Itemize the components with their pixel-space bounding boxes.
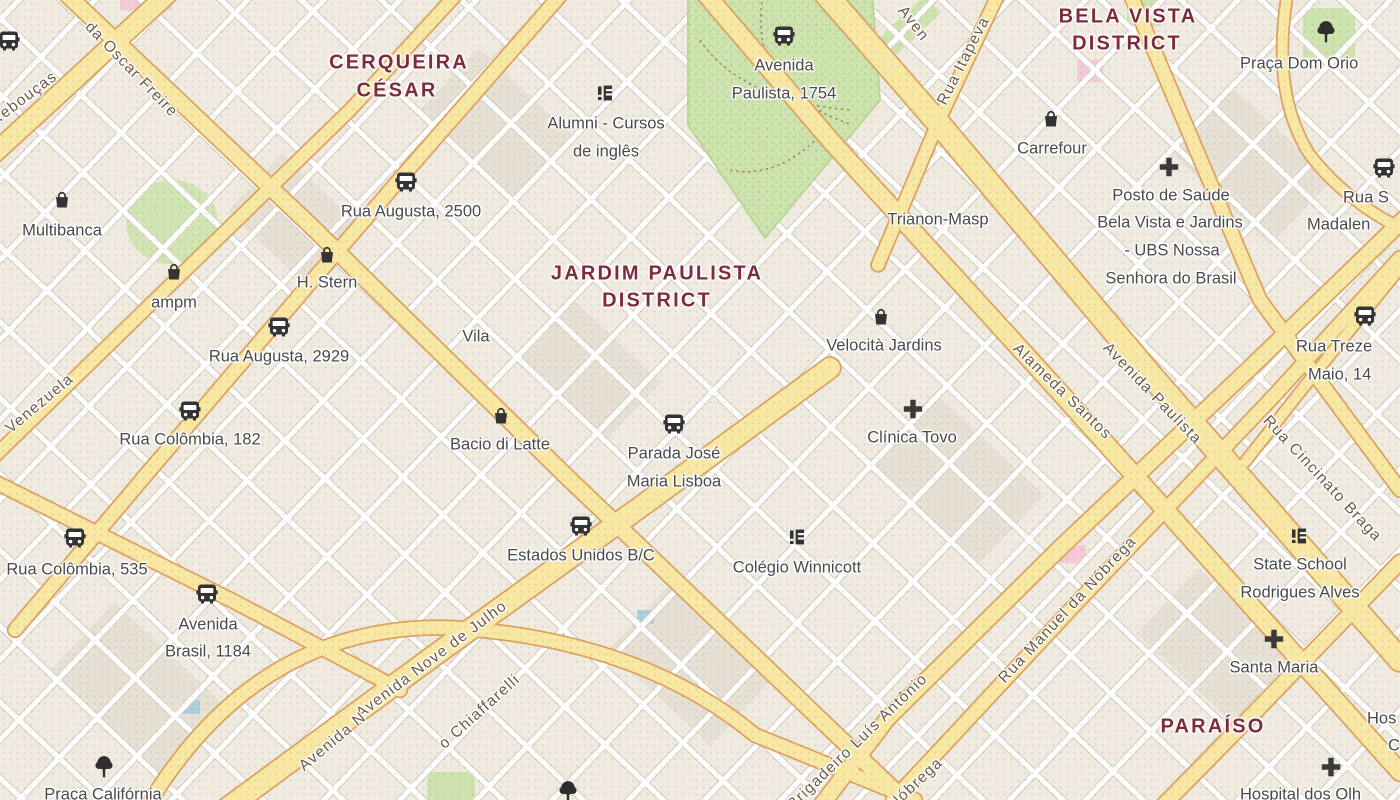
poi-label-clinica-tovo: Clínica Tovo — [867, 429, 957, 448]
cross-icon — [1319, 755, 1343, 779]
poi-label-avenida-paulista-1754: Avenida — [754, 57, 813, 76]
tree-icon — [555, 779, 581, 800]
street-label-avenida-top-fragment: Aven — [894, 3, 933, 45]
street-label-chiaffarelli: o Chiaffarelli — [436, 671, 524, 753]
cross-icon — [901, 397, 925, 421]
poi-label-velocita-jardins: Velocità Jardins — [826, 337, 942, 356]
bus-icon — [569, 514, 593, 538]
poi-label-avenida-brasil-1184: Avenida — [178, 616, 237, 635]
street-label-oscar-freire: da Oscar Freire — [81, 19, 181, 122]
bus-icon — [63, 526, 87, 550]
poi-label-alumni-cursos: Alumni - Cursos — [547, 115, 664, 134]
school-icon — [1289, 526, 1310, 547]
bus-icon — [178, 399, 202, 423]
bag-icon — [871, 307, 891, 327]
poi-label-rua-augusta-2500: Rua Augusta, 2500 — [341, 203, 481, 222]
poi-label-avenida-paulista-1754: Paulista, 1754 — [732, 85, 837, 104]
district-label-paraiso: PARAÍSO — [1160, 716, 1265, 739]
cross-icon — [1262, 627, 1286, 651]
district-label-bela-vista: BELA VISTA — [1059, 6, 1198, 29]
tree-icon — [91, 754, 117, 780]
bus-icon — [195, 582, 219, 606]
poi-label-carrefour: Carrefour — [1017, 140, 1087, 159]
poi-label-parada-jose-maria-lisboa: Maria Lisboa — [627, 473, 721, 492]
school-icon — [595, 83, 616, 104]
cross-icon — [1157, 155, 1181, 179]
bag-icon — [164, 262, 184, 282]
poi-label-rua-augusta-2929: Rua Augusta, 2929 — [209, 348, 349, 367]
poi-label-posto-de-saude: Senhora do Brasil — [1105, 270, 1236, 289]
poi-label-rua-colombia-182: Rua Colômbia, 182 — [119, 431, 260, 450]
school-icon — [787, 527, 808, 548]
poi-label-hospital-right-edge: Hos — [1367, 710, 1396, 729]
district-label-jardim-paulista: JARDIM PAULISTA — [551, 263, 763, 286]
bag-icon — [491, 406, 511, 426]
poi-label-praca-dom-orio: Praça Dom Orio — [1240, 55, 1358, 74]
poi-label-vila: Vila — [462, 328, 489, 347]
poi-label-state-school-rodrigues-alves: State School — [1253, 556, 1347, 575]
poi-label-posto-de-saude: - UBS Nossa — [1124, 242, 1219, 261]
bag-icon — [317, 245, 337, 265]
map-labels-layer: CERQUEIRACÉSARJARDIM PAULISTADISTRICTBEL… — [0, 0, 1400, 800]
poi-label-ampm: ampm — [151, 294, 197, 313]
bag-icon — [52, 190, 72, 210]
bus-icon — [1372, 156, 1396, 180]
bus-icon — [0, 29, 21, 53]
poi-label-multibanca: Multibanca — [22, 222, 102, 241]
poi-label-rua-santa-madalena: Madalen — [1307, 216, 1370, 235]
street-label-nobrega-fragment: Nóbrega — [885, 754, 947, 800]
poi-label-h-stern: H. Stern — [297, 274, 358, 293]
street-label-avenida-paulista: Avenida Paulista — [1099, 339, 1205, 448]
poi-label-posto-de-saude: Bela Vista e Jardins — [1097, 214, 1243, 233]
poi-label-colegio-winnicott: Colégio Winnicott — [733, 559, 861, 578]
district-label-cerqueira-cesar: CERQUEIRA — [329, 52, 469, 75]
bus-icon — [662, 412, 686, 436]
poi-label-bacio-di-latte: Bacio di Latte — [450, 436, 550, 455]
street-label-rua-manuel-da-nobrega: Rua Manuel da Nóbrega — [995, 533, 1141, 687]
bag-icon — [1041, 109, 1061, 129]
poi-label-rua-colombia-535: Rua Colômbia, 535 — [6, 561, 147, 580]
district-label-cerqueira-cesar: CÉSAR — [356, 80, 437, 103]
street-label-avenida-n-fragment: Avenida N — [296, 709, 370, 776]
poi-label-rua-treze-de-maio: Rua Treze — [1296, 338, 1372, 357]
map-viewport[interactable]: CERQUEIRACÉSARJARDIM PAULISTADISTRICTBEL… — [0, 0, 1400, 800]
bus-icon — [267, 315, 291, 339]
poi-label-alumni-cursos: de inglês — [573, 143, 639, 162]
poi-label-rua-treze-de-maio: Maio, 14 — [1308, 366, 1371, 385]
street-label-rua-cincinato-braga: Rua Cincinato Braga — [1259, 412, 1385, 546]
tree-icon — [1313, 19, 1339, 45]
poi-label-hospital-dos-olhos: Hospital dos Olh — [1240, 786, 1361, 800]
district-label-jardim-paulista: DISTRICT — [602, 290, 712, 313]
poi-label-avenida-brasil-1184: Brasil, 1184 — [165, 643, 251, 662]
street-label-alameda-santos: Alameda Santos — [1009, 340, 1115, 444]
poi-label-state-school-rodrigues-alves: Rodrigues Alves — [1240, 584, 1359, 603]
bus-icon — [394, 170, 418, 194]
bus-icon — [1353, 304, 1377, 328]
poi-label-parada-jose-maria-lisboa: Parada José — [628, 445, 721, 464]
poi-label-hospital-right-edge: C — [1388, 737, 1400, 756]
poi-label-posto-de-saude: Posto de Saúde — [1112, 187, 1229, 206]
poi-label-santa-maria: Santa Maria — [1230, 659, 1319, 678]
bus-icon — [772, 24, 796, 48]
street-label-rua-itapeva: Rua Itapeva — [934, 14, 994, 108]
poi-label-rua-santa-madalena: Rua S — [1343, 189, 1389, 208]
poi-label-trianon-masp: Trianon-Masp — [887, 211, 988, 230]
district-label-bela-vista: DISTRICT — [1072, 33, 1182, 56]
poi-label-estados-unidos-bc: Estados Unidos B/C — [507, 547, 655, 566]
street-label-reboucas: Rebouças — [0, 68, 61, 130]
street-label-venezuela: Venezuela — [2, 370, 77, 437]
poi-label-praca-california: Praça Califórnia — [44, 786, 161, 800]
